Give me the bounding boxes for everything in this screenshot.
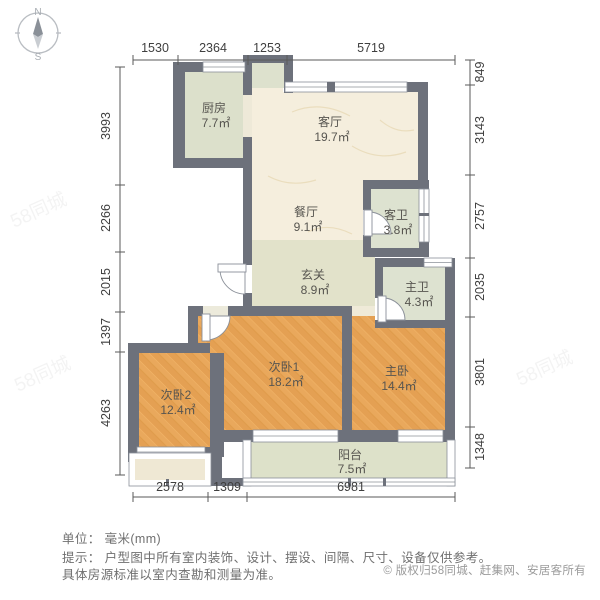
dim-bottom-1: 2578 xyxy=(156,480,184,494)
bedroom2-label: 次卧2 xyxy=(161,388,192,402)
bedroom2-area: 12.4㎡ xyxy=(160,403,195,417)
dim-top-3: 1253 xyxy=(253,41,281,55)
dim-bottom-2: 1309 xyxy=(213,480,241,494)
guest-bath-door-leaf xyxy=(364,210,372,236)
master-label: 主卧 xyxy=(385,364,409,378)
disclaimer-line2: 具体房源标准以室内查勘和测量为准。 xyxy=(62,564,281,583)
master-area: 14.4㎡ xyxy=(381,379,416,393)
watermark-text: 58同城 xyxy=(7,188,70,232)
bedroom1-area: 18.2㎡ xyxy=(268,375,303,389)
kitchen-label: 厨房 xyxy=(202,100,226,115)
dim-right-5: 3801 xyxy=(473,358,487,386)
floorplan-drawing: 厨房 7.7㎡ 客厅 19.7㎡ 餐厅 9.1㎡ 客卫 3.8㎡ 玄关 8.9㎡… xyxy=(0,0,600,520)
balcony-area: 7.5㎡ xyxy=(338,462,367,476)
dim-top-4: 5719 xyxy=(357,41,385,55)
unit-note: 单位： 毫米(mm) xyxy=(62,528,161,547)
balcony-label: 阳台 xyxy=(338,447,362,462)
dim-right-3: 2757 xyxy=(473,202,487,230)
dim-left-1: 3993 xyxy=(99,112,113,140)
watermark-text: 58同城 xyxy=(513,346,576,390)
dim-right-6: 1348 xyxy=(473,433,487,461)
dim-left-2: 2266 xyxy=(99,204,113,232)
master-bath-area: 4.3㎡ xyxy=(405,295,434,309)
guest-bath-label: 客卫 xyxy=(384,207,408,222)
dim-right-1: 849 xyxy=(473,62,487,83)
living-label: 客厅 xyxy=(318,114,342,129)
kitchen-doorway xyxy=(243,95,252,137)
entry-door-arc xyxy=(220,269,245,294)
living-area: 19.7㎡ xyxy=(314,130,349,144)
kitchen-area: 7.7㎡ xyxy=(202,116,231,130)
dim-right-2: 3143 xyxy=(473,116,487,144)
dim-left-4: 1397 xyxy=(99,318,113,346)
dim-top-1: 1530 xyxy=(141,41,169,55)
compass-icon: N S xyxy=(15,7,61,63)
floorplan-page: 厨房 7.7㎡ 客厅 19.7㎡ 餐厅 9.1㎡ 客卫 3.8㎡ 玄关 8.9㎡… xyxy=(0,0,600,600)
master-doorway xyxy=(352,306,375,316)
bedroom1-label: 次卧1 xyxy=(269,360,300,374)
master-bath-door-leaf xyxy=(378,296,386,322)
entry-label: 玄关 xyxy=(301,267,325,282)
copyright-notice: © 版权归58同城、赶集网、安居客所有 xyxy=(383,562,586,578)
bedroom1-door-leaf xyxy=(202,314,210,341)
watermark-text: 58同城 xyxy=(11,352,74,396)
dining-area: 9.1㎡ xyxy=(294,220,323,234)
dim-bottom-3: 6981 xyxy=(337,480,365,494)
dim-top-2: 2364 xyxy=(199,41,227,55)
compass-south: S xyxy=(35,52,42,63)
entry-area: 8.9㎡ xyxy=(301,283,330,297)
dining-label: 餐厅 xyxy=(294,204,318,219)
flue-niche-floor xyxy=(252,63,284,88)
guest-bath-area: 3.8㎡ xyxy=(384,223,413,237)
master-bath-label: 主卫 xyxy=(405,280,429,294)
dim-right-4: 2035 xyxy=(473,273,487,301)
dim-left-5: 4263 xyxy=(99,399,113,427)
entry-door-leaf xyxy=(218,264,246,272)
kitchen-floor xyxy=(185,72,243,158)
compass-north: N xyxy=(34,7,41,18)
dim-left-3: 2015 xyxy=(99,268,113,296)
